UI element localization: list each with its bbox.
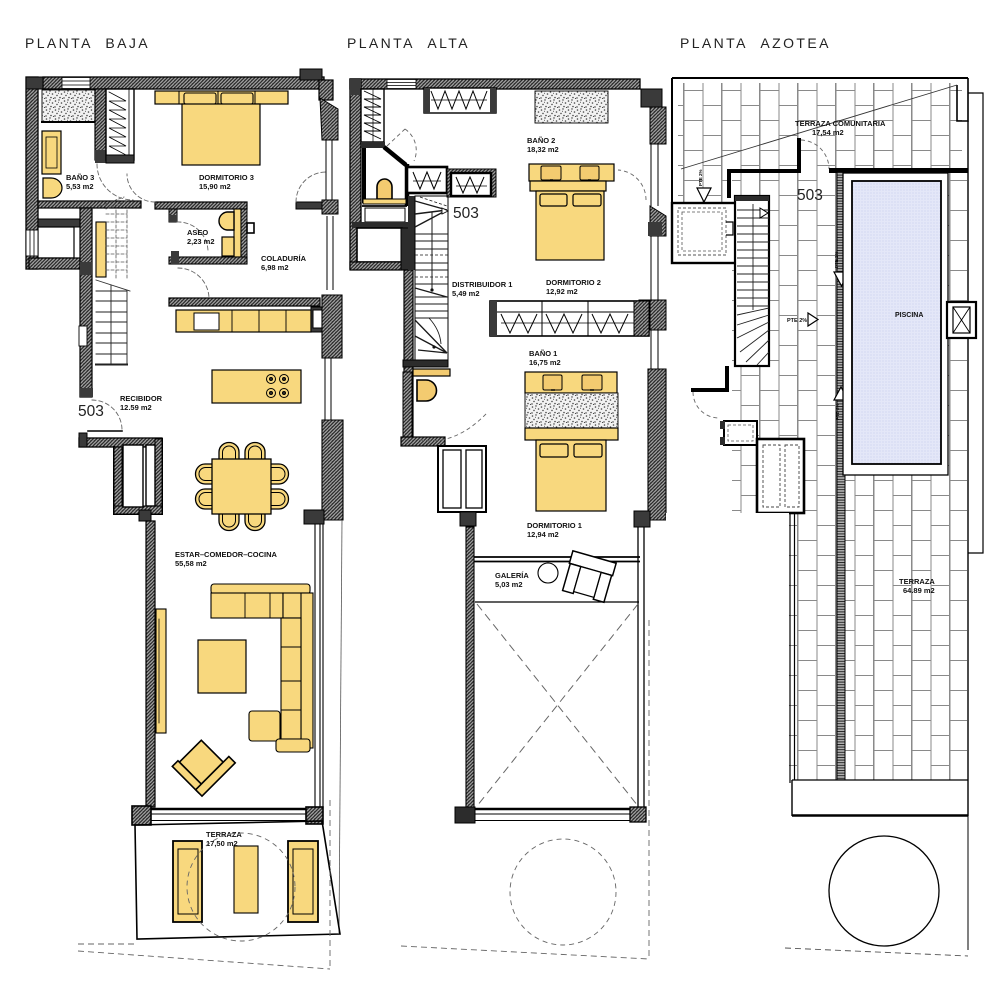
svg-text:12,92 m2: 12,92 m2 (546, 287, 578, 296)
svg-text:PLANTA ALTA: PLANTA ALTA (347, 35, 470, 51)
svg-text:COLADURÍA: COLADURÍA (261, 254, 307, 263)
svg-text:TERRAZA: TERRAZA (899, 577, 935, 586)
svg-text:12,94 m2: 12,94 m2 (527, 530, 559, 539)
svg-text:PTE 2%: PTE 2% (834, 251, 839, 268)
svg-text:BAÑO 3: BAÑO 3 (66, 173, 94, 182)
svg-text:503: 503 (78, 403, 104, 420)
svg-text:GALERÍA: GALERÍA (495, 571, 529, 580)
svg-text:18,32 m2: 18,32 m2 (527, 145, 559, 154)
svg-text:5,49 m2: 5,49 m2 (452, 289, 480, 298)
svg-text:503: 503 (453, 205, 479, 222)
svg-text:TERRAZA: TERRAZA (206, 830, 242, 839)
svg-text:DORMITORIO 2: DORMITORIO 2 (546, 278, 601, 287)
svg-text:6,98 m2: 6,98 m2 (261, 263, 289, 272)
svg-text:2,23 m2: 2,23 m2 (187, 237, 215, 246)
svg-text:ESTAR–COMEDOR–COCINA: ESTAR–COMEDOR–COCINA (175, 550, 278, 559)
svg-text:DISTRIBUIDOR 1: DISTRIBUIDOR 1 (452, 280, 512, 289)
svg-text:55,58 m2: 55,58 m2 (175, 559, 207, 568)
svg-text:17,50 m2: 17,50 m2 (206, 839, 238, 848)
svg-text:5,03 m2: 5,03 m2 (495, 580, 523, 589)
svg-text:PTE 2%: PTE 2% (787, 318, 807, 324)
svg-text:TERRAZA COMUNITARIA: TERRAZA COMUNITARIA (795, 119, 886, 128)
svg-text:DORMITORIO 1: DORMITORIO 1 (527, 521, 582, 530)
svg-text:BAÑO 2: BAÑO 2 (527, 136, 555, 145)
svg-text:ASEO: ASEO (187, 228, 208, 237)
svg-text:PTE 2%: PTE 2% (835, 403, 840, 420)
svg-text:64.89 m2: 64.89 m2 (903, 586, 935, 595)
svg-text:BAÑO 1: BAÑO 1 (529, 349, 557, 358)
svg-text:PTE 2%: PTE 2% (698, 169, 703, 186)
svg-text:PISCINA: PISCINA (895, 312, 923, 319)
svg-text:PLANTA AZOTEA: PLANTA AZOTEA (680, 35, 831, 51)
svg-text:DORMITORIO 3: DORMITORIO 3 (199, 173, 254, 182)
svg-text:5,53 m2: 5,53 m2 (66, 182, 94, 191)
svg-text:RECIBIDOR: RECIBIDOR (120, 394, 163, 403)
svg-text:503: 503 (797, 187, 823, 204)
svg-text:17,54 m2: 17,54 m2 (812, 128, 844, 137)
svg-text:15,90 m2: 15,90 m2 (199, 182, 231, 191)
svg-text:16,75 m2: 16,75 m2 (529, 358, 561, 367)
svg-text:12.59 m2: 12.59 m2 (120, 403, 152, 412)
svg-text:PLANTA BAJA: PLANTA BAJA (25, 35, 150, 51)
